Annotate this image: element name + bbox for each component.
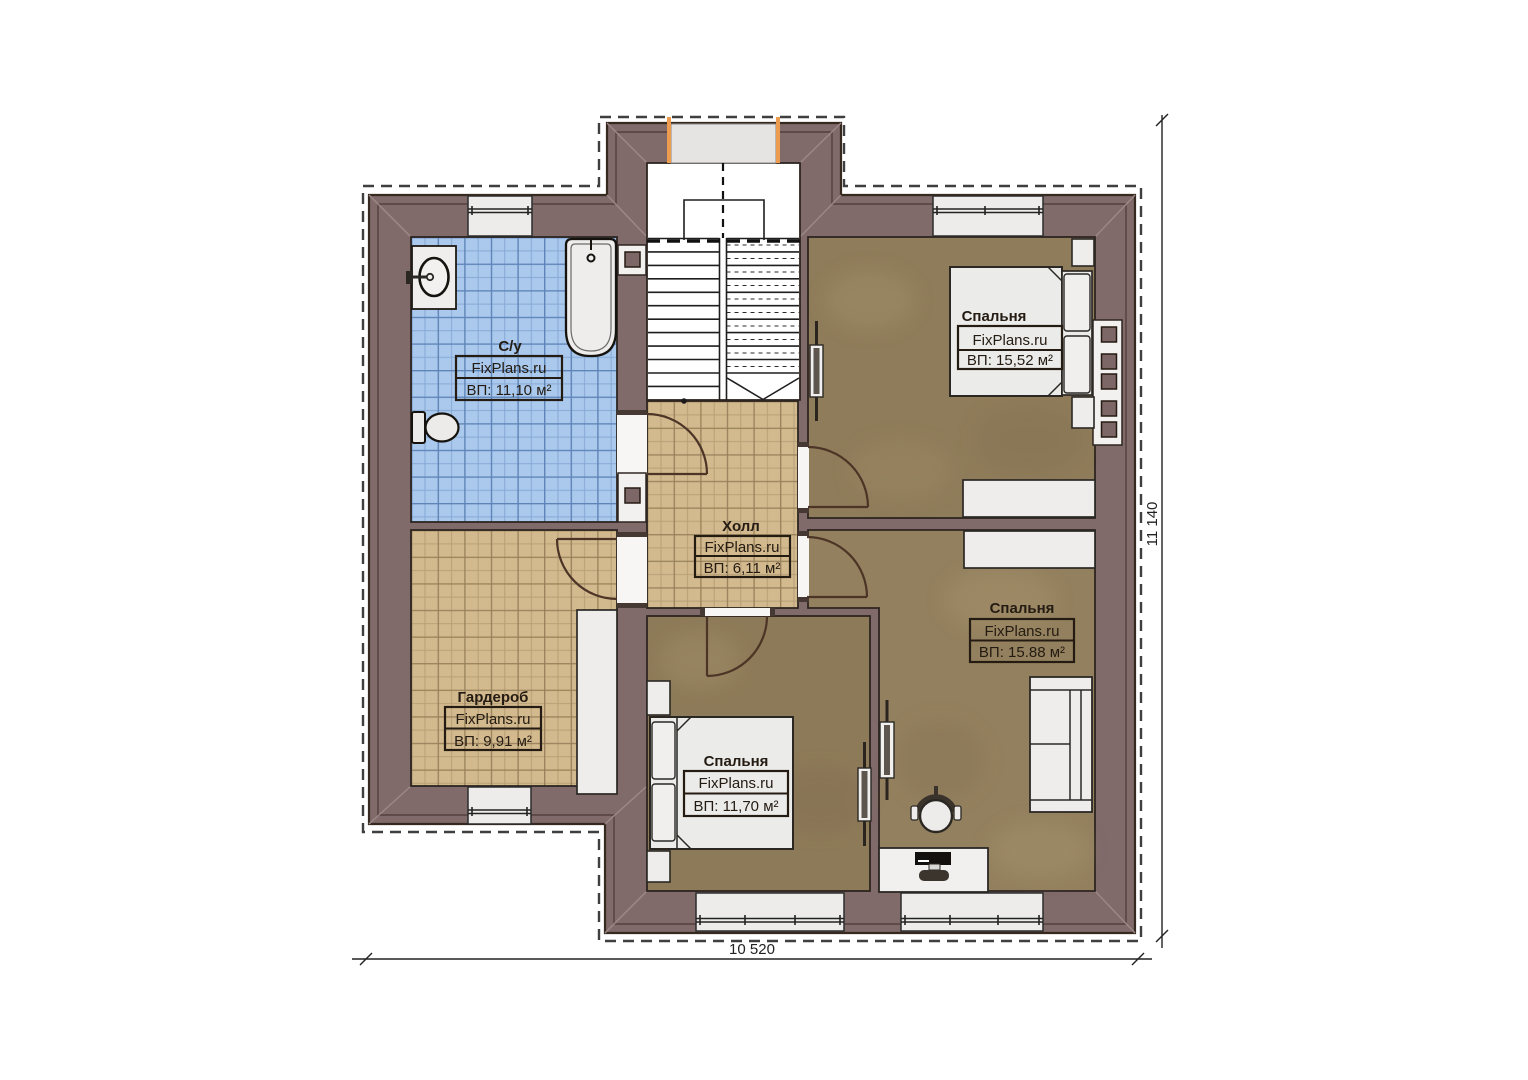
svg-text:ВП: 11,10 м²: ВП: 11,10 м² [466,382,551,399]
svg-text:ВП: 15.88 м²: ВП: 15.88 м² [979,644,1065,661]
svg-text:ВП: 15,52 м²: ВП: 15,52 м² [967,352,1053,369]
svg-text:FixPlans.ru: FixPlans.ru [972,332,1047,349]
svg-text:11 140: 11 140 [1144,502,1161,547]
svg-text:FixPlans.ru: FixPlans.ru [471,360,546,377]
svg-text:Спальня: Спальня [962,308,1027,325]
svg-text:FixPlans.ru: FixPlans.ru [455,711,530,728]
svg-text:FixPlans.ru: FixPlans.ru [698,775,773,792]
svg-text:FixPlans.ru: FixPlans.ru [704,539,779,556]
svg-text:Спальня: Спальня [704,753,769,770]
svg-text:ВП: 9,91 м²: ВП: 9,91 м² [454,733,532,750]
svg-text:Гардероб: Гардероб [458,689,529,706]
svg-text:ВП: 11,70 м²: ВП: 11,70 м² [693,798,778,815]
svg-text:Холл: Холл [722,518,760,535]
svg-text:С/у: С/у [498,338,522,355]
svg-text:FixPlans.ru: FixPlans.ru [984,623,1059,640]
svg-text:ВП: 6,11 м²: ВП: 6,11 м² [704,560,781,577]
svg-text:Спальня: Спальня [990,600,1055,617]
svg-text:10 520: 10 520 [729,941,775,958]
